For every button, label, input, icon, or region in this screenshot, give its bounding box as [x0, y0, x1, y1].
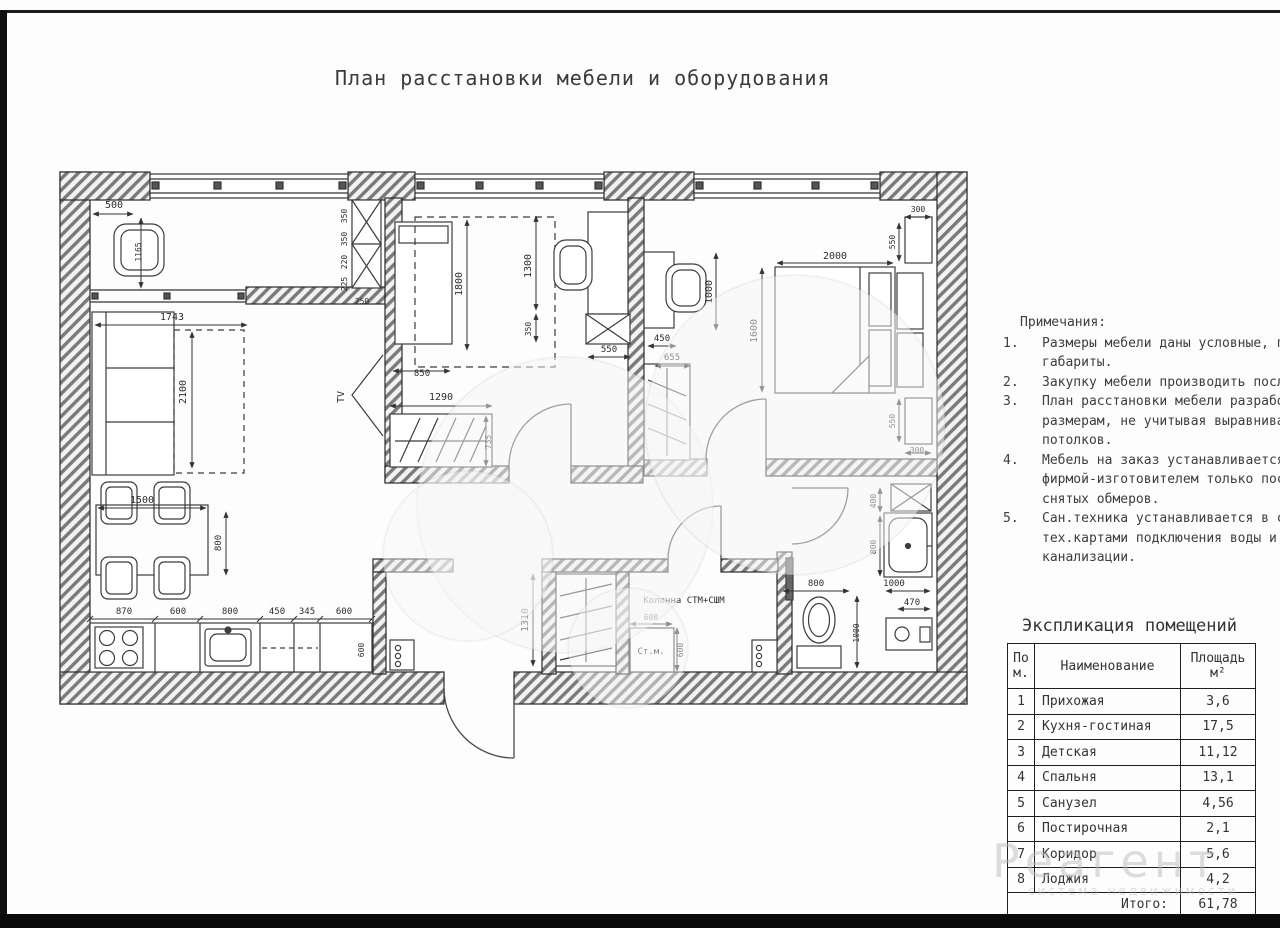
tv	[352, 355, 383, 436]
window	[415, 174, 604, 198]
dimension-label: 2000	[823, 251, 847, 262]
table-cell: Постирочная	[1035, 816, 1181, 842]
dimension-label: 350	[340, 209, 349, 224]
dimension-label: 220	[340, 255, 349, 270]
nightstand	[905, 217, 932, 263]
dimension-label: 2100	[178, 380, 189, 404]
loggia-window	[90, 290, 246, 302]
storage-cabinet	[352, 200, 381, 288]
note-item: 2.Закупку мебели производить после чисто…	[1003, 373, 1280, 393]
note-text: Закупку мебели производить после чистово…	[1042, 373, 1280, 393]
room-explication: Экспликация помещений Пом. Наименование …	[1007, 616, 1267, 917]
table-cell: 2,1	[1181, 816, 1256, 842]
dimension-label: 800	[214, 535, 224, 551]
table-cell: Кухня-гостиная	[1035, 714, 1181, 740]
dimension-label: 800	[222, 607, 238, 617]
entrance-door	[444, 688, 514, 758]
note-item: 4.Мебель на заказ устанавливаетсяфирмой-…	[1003, 451, 1280, 510]
header-name: Наименование	[1035, 644, 1181, 689]
hall-appliance	[390, 640, 414, 670]
table-cell: 11,12	[1181, 740, 1256, 766]
notes-list: 1.Размеры мебели даны условные, показаны…	[1003, 334, 1280, 568]
table-cell: 7	[1008, 842, 1035, 868]
dimension-label: 350	[524, 322, 533, 337]
dimension-label: 550	[601, 345, 617, 355]
explication-table: Пом. Наименование Площадьм² 1Прихожая3,6…	[1007, 643, 1256, 917]
table-cell: 13,1	[1181, 765, 1256, 791]
dimension-label: 870	[116, 607, 132, 617]
table-row: 6Постирочная2,1	[1008, 816, 1256, 842]
table-title: Экспликация помещений	[1007, 616, 1252, 636]
table-cell: 4,56	[1181, 791, 1256, 817]
bathroom-sink	[886, 618, 932, 650]
kitchen-counter	[90, 623, 372, 672]
note-text: Сан.техника устанавливается в соответств…	[1042, 509, 1280, 568]
table-row: 1Прихожая3,6	[1008, 689, 1256, 715]
table-cell: 3,6	[1181, 689, 1256, 715]
kids-bed	[395, 217, 555, 367]
note-number: 2.	[1003, 373, 1042, 393]
table-row: 3Детская11,12	[1008, 740, 1256, 766]
table-cell: 3	[1008, 740, 1035, 766]
table-cell: Коридор	[1035, 842, 1181, 868]
total-value: 61,78	[1181, 893, 1256, 917]
note-number: 3.	[1003, 392, 1042, 451]
table-cell: 17,5	[1181, 714, 1256, 740]
table-cell: 5,6	[1181, 842, 1256, 868]
dimension-label: 850	[414, 369, 430, 379]
table-row: 4Спальня13,1	[1008, 765, 1256, 791]
dimension-label: 1290	[429, 392, 453, 403]
dimension-label: 1300	[523, 254, 534, 278]
dimension-label: 345	[299, 607, 315, 617]
total-label: Итого:	[1008, 893, 1181, 917]
dimension-label: 350	[340, 232, 349, 247]
dimension-label: 250	[355, 297, 370, 306]
dimension-label: 450	[654, 334, 670, 344]
table-row: 7Коридор5,6	[1008, 842, 1256, 868]
note-item: 1.Размеры мебели даны условные, показаны…	[1003, 334, 1280, 373]
table-cell: 8	[1008, 867, 1035, 893]
dimension-label: 1800	[454, 272, 465, 296]
header-num: Пом.	[1008, 644, 1035, 689]
sheet-frame-bottom	[0, 914, 1280, 928]
table-cell: Детская	[1035, 740, 1181, 766]
dimension-label: 500	[105, 200, 123, 211]
dimension-label: 800	[808, 579, 824, 589]
note-text: План расстановки мебели разработан пораз…	[1042, 392, 1280, 451]
note-item: 3.План расстановки мебели разработан пор…	[1003, 392, 1280, 451]
dimension-label: 1000	[852, 623, 861, 642]
toilet	[797, 597, 841, 668]
table-total-row: Итого: 61,78	[1008, 893, 1256, 917]
table-cell: 1	[1008, 689, 1035, 715]
window	[150, 174, 348, 198]
table-cell: 4,2	[1181, 867, 1256, 893]
note-text: Мебель на заказ устанавливаетсяфирмой-из…	[1042, 451, 1280, 510]
boiler	[752, 640, 777, 672]
notes-heading: Примечания:	[1020, 313, 1280, 333]
note-number: 5.	[1003, 509, 1042, 568]
dimension-label: 1500	[130, 495, 154, 506]
table-cell: Санузел	[1035, 791, 1181, 817]
kids-desk	[554, 212, 630, 344]
dimension-label: 1165	[134, 242, 143, 261]
table-cell: 5	[1008, 791, 1035, 817]
dimension-label: 600	[170, 607, 186, 617]
note-text: Размеры мебели даны условные, показаныга…	[1042, 334, 1280, 373]
note-item: 5.Сан.техника устанавливается в соответс…	[1003, 509, 1280, 568]
header-area: Площадьм²	[1181, 644, 1256, 689]
dimension-label: 450	[269, 607, 285, 617]
dimension-label: 550	[888, 235, 897, 250]
table-row: 5Санузел4,56	[1008, 791, 1256, 817]
table-cell: Прихожая	[1035, 689, 1181, 715]
table-header-row: Пом. Наименование Площадьм²	[1008, 644, 1256, 689]
table-cell: 4	[1008, 765, 1035, 791]
table-row: 2Кухня-гостиная17,5	[1008, 714, 1256, 740]
table-cell: 6	[1008, 816, 1035, 842]
dimension-label: 600	[357, 643, 366, 658]
table-cell: 2	[1008, 714, 1035, 740]
note-number: 4.	[1003, 451, 1042, 510]
window	[694, 174, 880, 198]
note-number: 1.	[1003, 334, 1042, 373]
sofa	[92, 312, 244, 475]
dimension-label: 470	[904, 598, 920, 608]
table-cell: Лоджия	[1035, 867, 1181, 893]
dimension-label: 1743	[160, 312, 184, 323]
table-cell: Спальня	[1035, 765, 1181, 791]
table-row: 8Лоджия4,2	[1008, 867, 1256, 893]
dimension-label: 225	[340, 277, 349, 292]
drawing-sheet: План расстановки мебели и оборудования	[0, 0, 1280, 928]
dimension-label: TV	[336, 391, 347, 403]
dimension-label: 1000	[883, 579, 905, 589]
dimension-label: 300	[911, 205, 926, 214]
dimension-label: 600	[336, 607, 352, 617]
notes-block: Примечания: 1.Размеры мебели даны условн…	[1003, 313, 1280, 568]
